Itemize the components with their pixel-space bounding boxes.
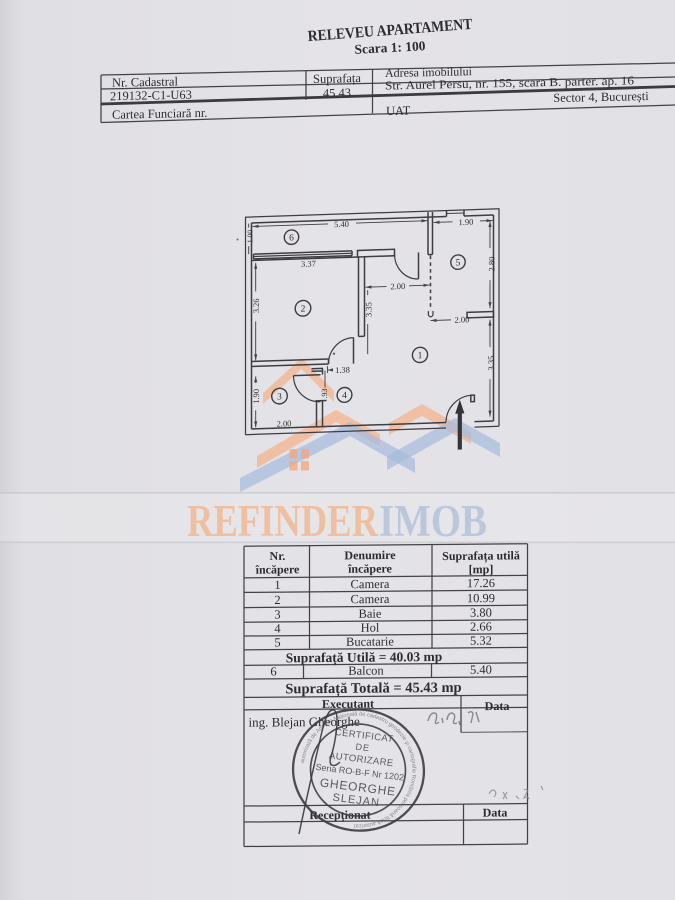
svg-text:Denumire: Denumire: [344, 548, 396, 562]
svg-text:1: 1: [418, 351, 423, 361]
svg-text:Camera: Camera: [351, 592, 390, 606]
svg-text:2.00: 2.00: [455, 314, 470, 324]
svg-text:REFINDER: REFINDER: [187, 496, 378, 546]
svg-text:Suprafața: Suprafața: [313, 71, 361, 86]
svg-text:2.00: 2.00: [390, 281, 405, 291]
svg-text:2: 2: [274, 593, 280, 607]
svg-text:Cartea Funciară nr.: Cartea Funciară nr.: [112, 106, 207, 122]
svg-text:5: 5: [456, 258, 461, 268]
svg-text:1.90: 1.90: [459, 217, 474, 227]
svg-text:4: 4: [342, 391, 347, 401]
svg-text:2.00: 2.00: [277, 418, 292, 428]
svg-text:1.38: 1.38: [335, 365, 350, 375]
svg-text:IMOB: IMOB: [379, 496, 487, 546]
svg-text:Hol: Hol: [361, 621, 380, 635]
svg-text:3: 3: [277, 392, 282, 402]
svg-text:10.99: 10.99: [467, 591, 495, 605]
svg-text:2.66: 2.66: [470, 620, 492, 634]
svg-text:3.35: 3.35: [363, 302, 373, 317]
svg-text:[mp]: [mp]: [469, 562, 494, 576]
svg-text:6: 6: [270, 664, 276, 678]
svg-text:Camera: Camera: [351, 577, 390, 591]
svg-text:1: 1: [274, 578, 280, 592]
svg-text:DE: DE: [355, 742, 371, 754]
svg-text:Nr.: Nr.: [270, 549, 286, 563]
svg-text:2.80: 2.80: [486, 256, 496, 271]
svg-text:4: 4: [274, 621, 281, 635]
svg-text:Data: Data: [485, 699, 510, 713]
svg-text:Balcon: Balcon: [348, 664, 384, 678]
svg-text:219132-C1-U63: 219132-C1-U63: [110, 88, 192, 104]
svg-text:1.00: 1.00: [245, 230, 254, 244]
svg-text:Baie: Baie: [359, 607, 382, 621]
svg-text:5.40: 5.40: [470, 663, 492, 677]
svg-text:3.80: 3.80: [470, 606, 492, 620]
svg-text:5.40: 5.40: [334, 219, 349, 229]
svg-text:Data: Data: [483, 805, 508, 819]
svg-text:3.35: 3.35: [486, 355, 496, 370]
svg-text:17.26: 17.26: [467, 576, 495, 590]
svg-text:3.37: 3.37: [301, 258, 316, 268]
svg-text:.93: .93: [320, 388, 329, 398]
svg-text:5.32: 5.32: [470, 634, 492, 648]
svg-text:2: 2: [301, 305, 306, 315]
svg-text:1.90: 1.90: [251, 389, 261, 404]
svg-text:3: 3: [274, 607, 280, 621]
svg-text:45.43: 45.43: [323, 86, 351, 101]
svg-text:5: 5: [274, 635, 280, 649]
svg-text:3.26: 3.26: [251, 298, 261, 313]
svg-text:Sector 4, București: Sector 4, București: [553, 89, 649, 105]
svg-text:6: 6: [289, 233, 294, 243]
svg-text:UAT: UAT: [386, 104, 411, 119]
svg-text:Bucatarie: Bucatarie: [346, 634, 394, 648]
svg-text:încăpere: încăpere: [255, 562, 300, 576]
svg-text:încăpere: încăpere: [347, 561, 392, 575]
svg-text:Suprafață Totală = 45.43 mp: Suprafață Totală = 45.43 mp: [285, 680, 461, 698]
